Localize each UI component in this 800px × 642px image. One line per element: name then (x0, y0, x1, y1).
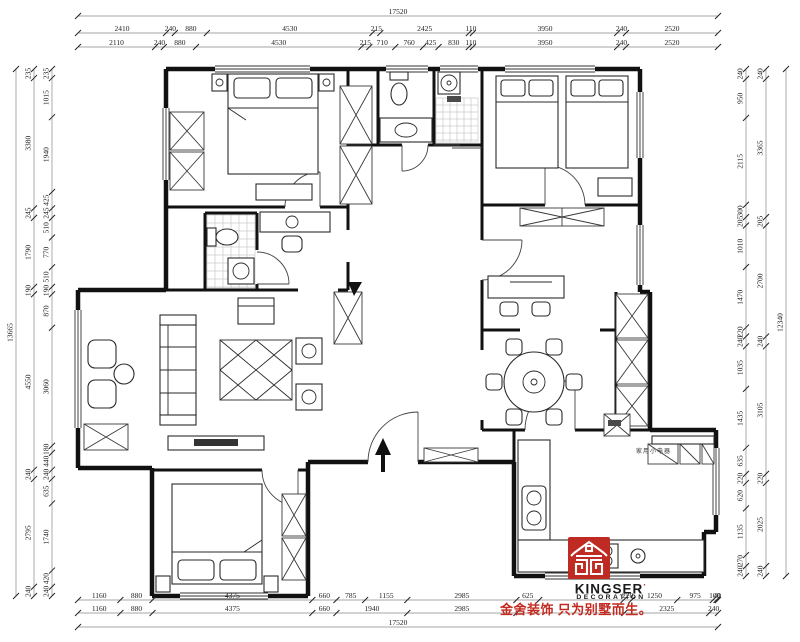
dim-label: 240 (616, 24, 628, 33)
dim-label: 205 (756, 215, 765, 227)
dim-label: 245 (24, 207, 33, 219)
dim-label: 425 (42, 194, 51, 206)
brand-mark: · (643, 580, 647, 590)
dim-label: 3365 (756, 140, 765, 155)
dim-label: 240 (42, 585, 51, 597)
dim-label: 1010 (736, 239, 745, 254)
dim-label: 510 (42, 222, 51, 234)
dim-label: 2025 (756, 517, 765, 532)
dim-label: 240 (154, 38, 166, 47)
dim-label: 1940 (364, 604, 379, 613)
dim-label: 240 (736, 565, 745, 577)
dim-label: 1155 (379, 591, 394, 600)
dim-label: 4530 (271, 38, 286, 47)
dim-label: 635 (42, 485, 51, 497)
dim-label: 240 (24, 468, 33, 480)
dim-label: 2520 (664, 38, 679, 47)
dim-label: 220 (736, 473, 745, 485)
dim-label: 830 (448, 38, 460, 47)
dim-label: 660 (319, 591, 331, 600)
dim-label: 1435 (736, 411, 745, 426)
dim-label: 205 (736, 215, 745, 227)
dim-label: 880 (131, 591, 143, 600)
dim-label: 870 (42, 305, 51, 317)
dim-label: 240 (708, 604, 720, 613)
dim-label: 190 (24, 285, 33, 297)
dim-label: 190 (42, 285, 51, 297)
dim-label: 240 (165, 24, 177, 33)
dim-label: 180 (42, 443, 51, 455)
dim-label: 240 (42, 468, 51, 480)
dim-label: 3950 (538, 24, 553, 33)
dim-label: 510 (42, 271, 51, 283)
dim-label: 13665 (6, 323, 15, 342)
dim-label: 4375 (225, 604, 240, 613)
dim-label: 1015 (42, 90, 51, 105)
kingser-emblem-icon (568, 537, 610, 579)
dim-label: 785 (345, 591, 357, 600)
floor-plan-page: 1752024102408804530215242511039502402520… (0, 0, 800, 642)
dim-label: 17520 (389, 618, 408, 627)
dim-label: 4375 (225, 591, 240, 600)
dim-label: 240 (736, 68, 745, 80)
dim-label: 3105 (756, 402, 765, 417)
dimension-annotations: 1752024102408804530215242511039502402520… (0, 0, 800, 642)
dim-label: 760 (404, 38, 416, 47)
dim-label: 2795 (24, 525, 33, 540)
dim-label: 240 (756, 336, 765, 348)
dim-label: 2425 (417, 24, 432, 33)
dim-label: 1740 (42, 529, 51, 544)
dim-label: 880 (174, 38, 186, 47)
dim-label: 950 (736, 93, 745, 105)
dim-label: 17520 (389, 7, 408, 16)
dim-label: 440 (42, 455, 51, 467)
dim-label: 1160 (92, 604, 107, 613)
dim-label: 2700 (756, 273, 765, 288)
dim-label: 235 (24, 68, 33, 80)
dim-label: 240 (24, 585, 33, 597)
dim-label: 215 (371, 24, 383, 33)
dim-label: 660 (319, 604, 331, 613)
dim-label: 1035 (736, 360, 745, 375)
appliance-counter-label: 家用小电器 (636, 446, 671, 455)
dim-label: 240 (756, 68, 765, 80)
dim-label: 235 (42, 68, 51, 80)
dim-label: 2985 (454, 591, 469, 600)
dim-label: 3380 (24, 135, 33, 150)
brand-tagline: 金舍装饰 只为别墅而生。 (500, 599, 670, 618)
dim-label: 12340 (776, 313, 785, 332)
dim-label: 245 (42, 207, 51, 219)
dim-label: 420 (42, 573, 51, 585)
dim-label: 710 (377, 38, 389, 47)
dim-label: 975 (689, 591, 701, 600)
dim-label: 635 (736, 455, 745, 467)
dim-label: 2115 (736, 154, 745, 169)
dim-label: 2520 (664, 24, 679, 33)
dim-label: 620 (736, 490, 745, 502)
dim-label: 1470 (736, 289, 745, 304)
dim-label: 2110 (109, 38, 124, 47)
dim-label: 240 (736, 336, 745, 348)
dim-label: 300 (736, 205, 745, 217)
dim-label: 2410 (115, 24, 130, 33)
dim-label: 3950 (538, 38, 553, 47)
dim-label: 425 (425, 38, 437, 47)
dim-label: 1135 (736, 524, 745, 539)
dim-label: 2985 (454, 604, 469, 613)
dim-label: 40 (714, 591, 722, 600)
dim-label: 240 (756, 565, 765, 577)
dim-label: 1940 (42, 147, 51, 162)
dim-label: 240 (616, 38, 628, 47)
dim-label: 770 (42, 247, 51, 259)
dim-label: 3060 (42, 379, 51, 394)
dim-label: 1160 (92, 591, 107, 600)
dim-label: 4530 (282, 24, 297, 33)
dim-label: 270 (736, 555, 745, 567)
dim-label: 880 (131, 604, 143, 613)
dim-label: 880 (185, 24, 197, 33)
dim-label: 215 (360, 38, 372, 47)
dim-label: 1790 (24, 245, 33, 260)
dim-label: 220 (756, 473, 765, 485)
dim-label: 4550 (24, 374, 33, 389)
